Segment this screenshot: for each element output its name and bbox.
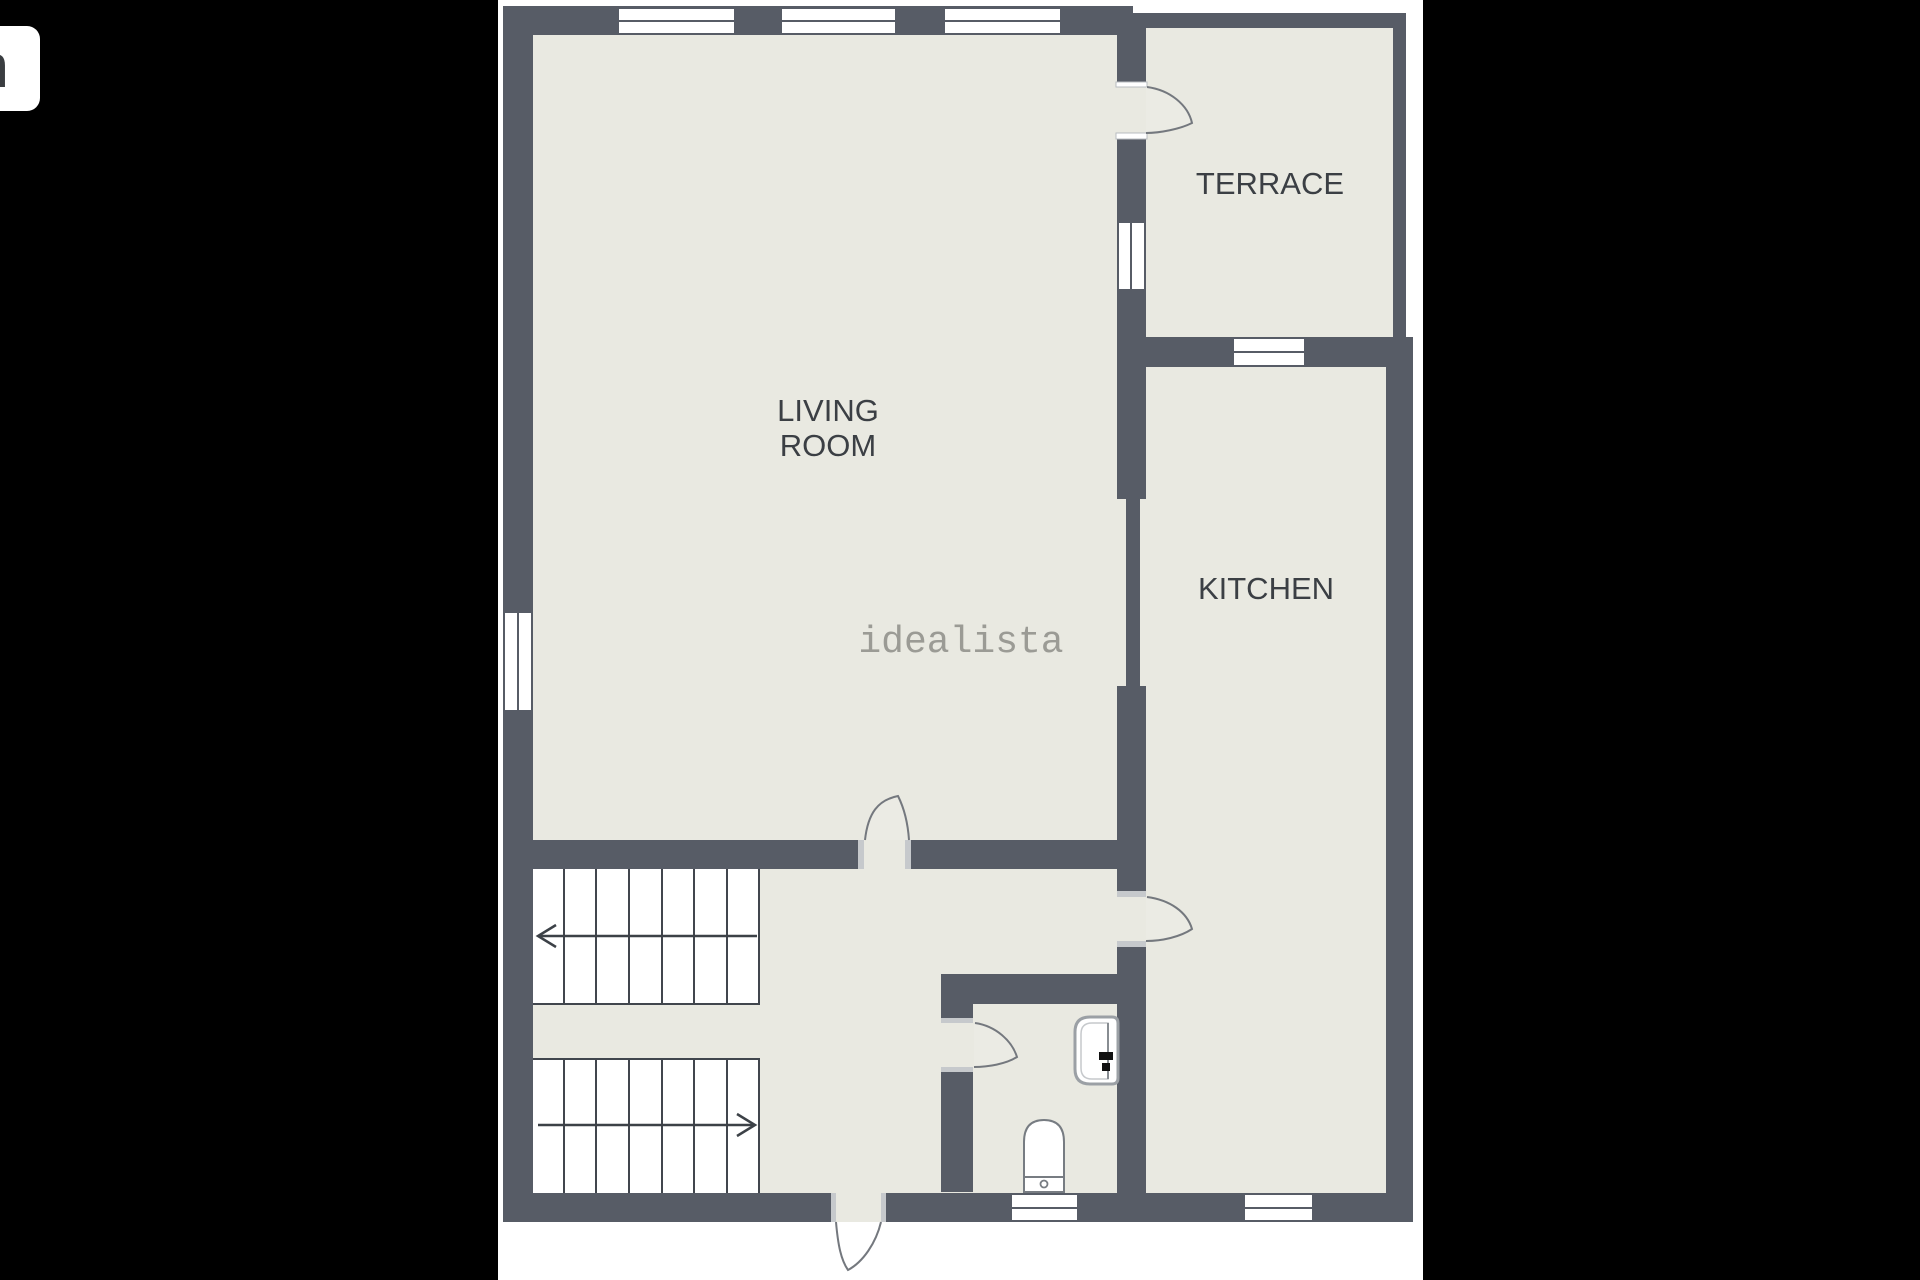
svg-text:TERRACE: TERRACE <box>1196 166 1344 201</box>
svg-text:n: n <box>0 32 9 100</box>
svg-text:LIVING: LIVING <box>777 393 879 428</box>
svg-text:KITCHEN: KITCHEN <box>1198 571 1334 606</box>
svg-text:ROOM: ROOM <box>780 428 876 463</box>
svg-text:idealista: idealista <box>858 621 1063 664</box>
